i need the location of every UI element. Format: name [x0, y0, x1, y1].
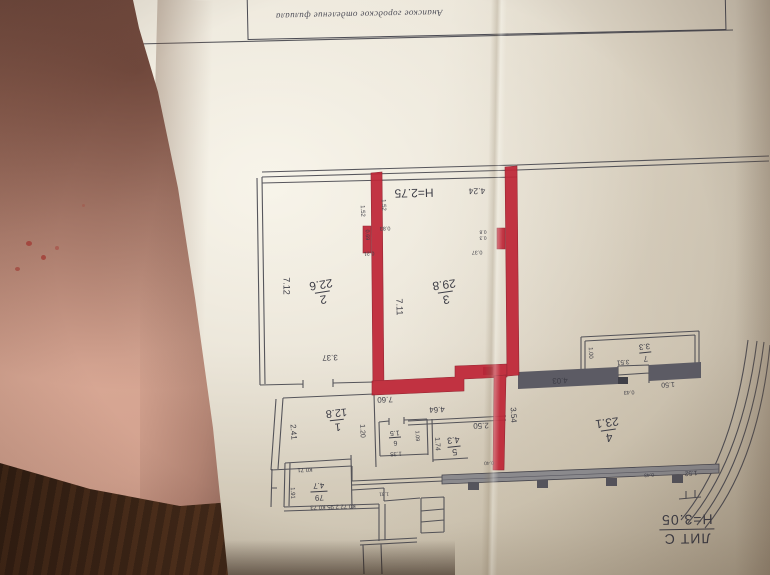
- dim-1-52-bottom: 1.52: [684, 468, 697, 475]
- room-2-area: 22.6: [308, 275, 333, 293]
- photo-scene: Анапское городское отделение филиала: [0, 0, 770, 575]
- dim-1-20: 1.20: [358, 424, 365, 438]
- dim-3-37: 3.37: [322, 353, 338, 362]
- dim-3-51: 3.51: [616, 357, 629, 364]
- room-7-label: 7 3.3: [638, 341, 652, 362]
- room-7-area: 3.3: [638, 341, 650, 352]
- room-1-label: 1 12.8: [325, 404, 349, 433]
- room-3-label: 3 29.8: [431, 275, 458, 307]
- dim-0-43-window: 0.43: [624, 388, 635, 394]
- room-4-number: 4: [601, 428, 618, 444]
- room-7-number: 7: [639, 351, 652, 362]
- room-5-number: 5: [448, 445, 462, 457]
- paper-right-curl: [735, 0, 770, 575]
- dim-4-64: 4.64: [429, 405, 445, 414]
- dim-1-09: 1.09: [413, 431, 419, 442]
- skin-spot: [41, 255, 46, 260]
- dim-0-83: 0.83: [380, 224, 391, 230]
- dim-0-3: 0.3: [479, 234, 486, 239]
- room-2-label: 2 22.6: [308, 275, 336, 308]
- litera-block: ЛИТ С H=3.05: [659, 512, 714, 547]
- dim-1-52-right: 1.52: [380, 199, 386, 211]
- room-3-area: 29.8: [431, 275, 456, 293]
- dim-1-91: 1.91: [289, 487, 295, 499]
- dim-0-43-bottom: 0.43: [644, 471, 654, 477]
- dim-1-31: 1.31: [379, 490, 389, 495]
- room-1-number: 1: [330, 418, 345, 433]
- dim-0-21: 0.21: [364, 249, 375, 255]
- dim-3-54: 3.54: [509, 407, 518, 423]
- room-4-area: 23.1: [594, 413, 619, 431]
- skin-spot: [15, 267, 20, 271]
- paper-bottom-shadow: [205, 540, 455, 575]
- skin-spot: [82, 204, 85, 207]
- dim-4-03: 4.03: [552, 376, 568, 385]
- dim-0-69: 0.69: [363, 230, 369, 241]
- room-4-label: 4 23.1: [594, 413, 621, 445]
- room-2-number: 2: [315, 290, 332, 307]
- dim-7-11: 7.11: [394, 298, 404, 315]
- dim-1-50: 1.50: [661, 380, 675, 388]
- room-6-number: 6: [389, 437, 401, 447]
- room-6-area: 1.5: [390, 428, 400, 438]
- room-79-area: 4.7: [313, 481, 325, 492]
- dim-1-00: 1.00: [587, 347, 594, 359]
- skin-spot: [26, 241, 32, 246]
- dim-4-24: 4.24: [469, 187, 486, 196]
- dim-1-35: 1.35: [390, 450, 402, 456]
- room-79-number: 79: [311, 491, 328, 502]
- dim-0-37: 0.37: [472, 248, 483, 254]
- room-79-label: 79 4.7: [310, 481, 328, 502]
- dim-7-60: 7.60: [377, 395, 393, 404]
- dim-1-74: 1.74: [433, 437, 441, 451]
- room-5-label: 5 4.3: [446, 434, 461, 458]
- litera-height: H=3.05: [661, 512, 713, 530]
- room-3-number: 3: [438, 290, 455, 306]
- dim-ceiling-height: H=2.75: [394, 187, 433, 200]
- dim-1-52-left: 1.52: [359, 205, 365, 217]
- room-6-label: 6 1.5: [388, 428, 401, 447]
- dim-2-41: 2.41: [288, 424, 297, 440]
- room-1-area: 12.8: [325, 404, 348, 420]
- dim-0-8: 0.8: [479, 228, 486, 233]
- dim-k0-71: К0.71: [297, 466, 312, 473]
- dim-7-12: 7.12: [282, 277, 291, 295]
- skin-spot: [55, 246, 59, 250]
- litera-label: ЛИТ С: [660, 529, 715, 547]
- room-5-area: 4.3: [447, 434, 461, 447]
